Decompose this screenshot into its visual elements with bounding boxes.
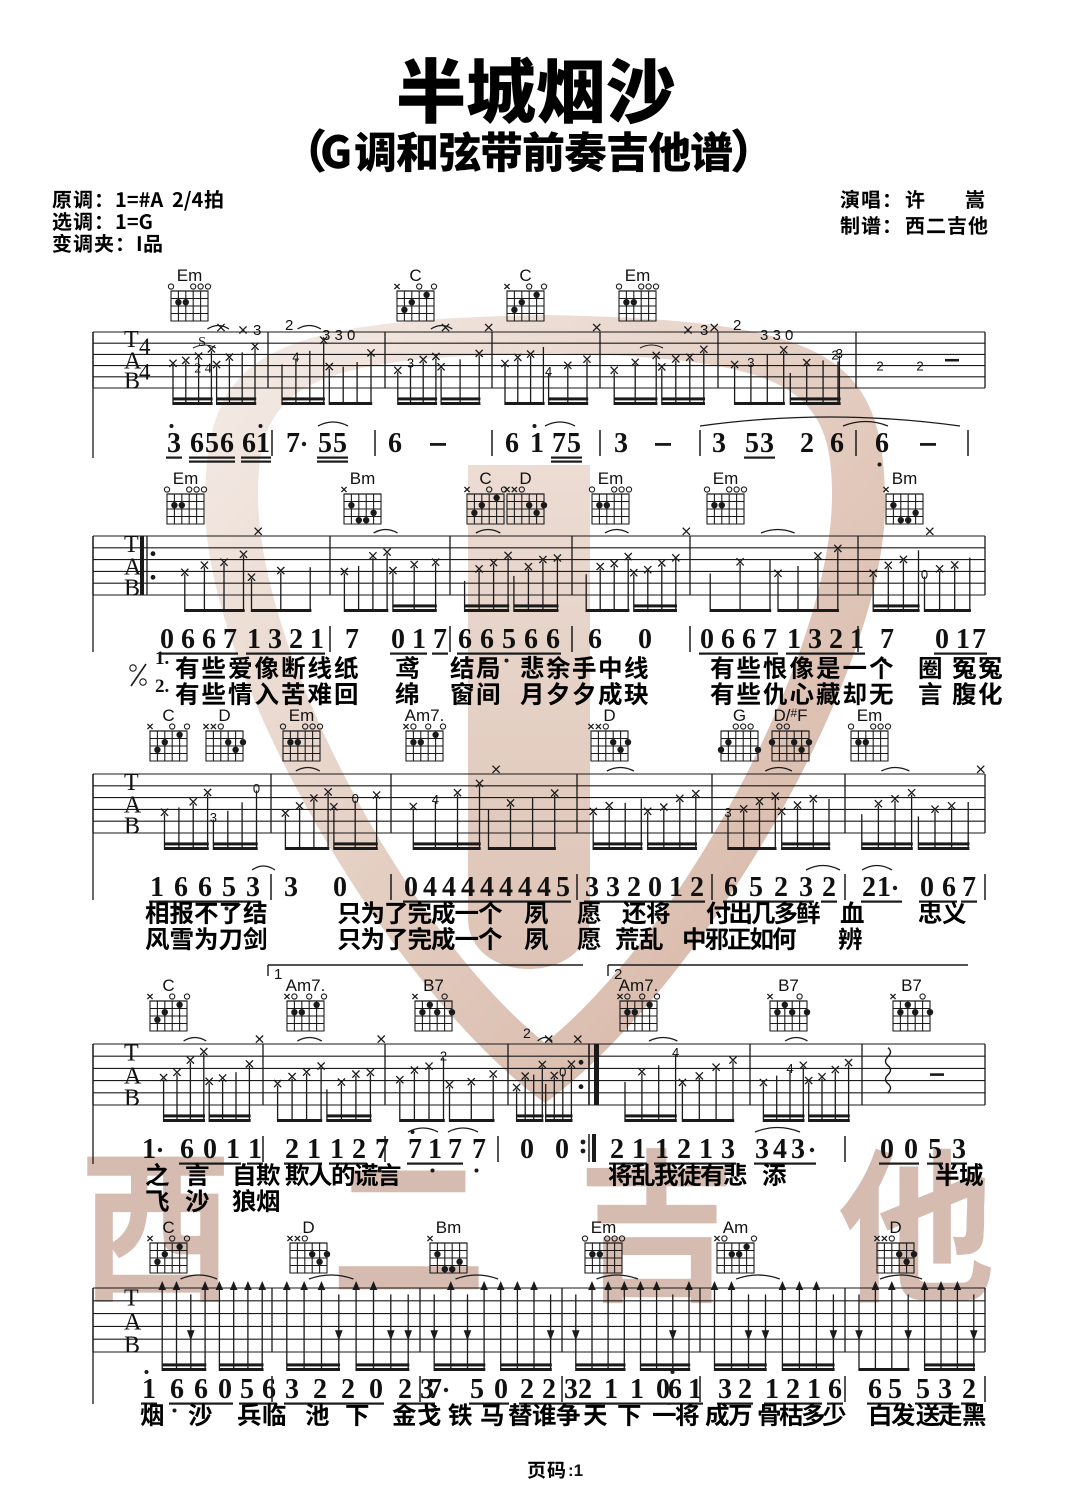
svg-text:2: 2 bbox=[610, 1134, 624, 1165]
svg-text:3: 3 bbox=[700, 322, 708, 339]
svg-text:2: 2 bbox=[831, 348, 838, 363]
svg-text:5: 5 bbox=[749, 872, 763, 903]
svg-text:Em: Em bbox=[173, 469, 199, 488]
svg-text:6: 6 bbox=[505, 428, 519, 459]
svg-text:1: 1 bbox=[632, 1134, 646, 1165]
svg-text:7: 7 bbox=[375, 1134, 389, 1165]
svg-text:3: 3 bbox=[760, 428, 774, 459]
svg-text:2: 2 bbox=[822, 872, 836, 903]
svg-text:3: 3 bbox=[791, 1134, 805, 1165]
svg-text:2: 2 bbox=[289, 624, 303, 655]
svg-text:6: 6 bbox=[868, 1374, 882, 1405]
svg-text:5: 5 bbox=[333, 428, 347, 459]
svg-text:3: 3 bbox=[808, 624, 822, 655]
svg-text:B7: B7 bbox=[901, 976, 922, 995]
svg-text:C: C bbox=[162, 706, 174, 725]
svg-text:3: 3 bbox=[721, 1134, 735, 1165]
svg-text:5: 5 bbox=[470, 1374, 484, 1405]
svg-text:1: 1 bbox=[787, 624, 801, 655]
svg-text:7: 7 bbox=[428, 1374, 442, 1405]
svg-text:6: 6 bbox=[202, 624, 216, 655]
svg-text:0: 0 bbox=[333, 872, 347, 903]
svg-text:6: 6 bbox=[198, 872, 212, 903]
svg-text:2: 2 bbox=[341, 1374, 355, 1405]
svg-text:5: 5 bbox=[745, 428, 759, 459]
svg-text:7: 7 bbox=[552, 428, 566, 459]
svg-text:0: 0 bbox=[218, 1374, 232, 1405]
svg-text:7: 7 bbox=[972, 624, 986, 655]
svg-text:6: 6 bbox=[170, 1374, 184, 1405]
svg-text:2: 2 bbox=[285, 317, 293, 334]
svg-text:3: 3 bbox=[938, 1374, 952, 1405]
svg-text:7: 7 bbox=[408, 1134, 422, 1165]
svg-text:2: 2 bbox=[542, 1374, 556, 1405]
svg-text:3 3 0: 3 3 0 bbox=[322, 327, 355, 344]
svg-text:6: 6 bbox=[388, 428, 402, 459]
svg-text:2.: 2. bbox=[155, 676, 169, 697]
svg-text:3: 3 bbox=[285, 1374, 299, 1405]
svg-text:6: 6 bbox=[588, 624, 602, 655]
svg-text:B: B bbox=[124, 576, 140, 602]
svg-text:3: 3 bbox=[268, 624, 282, 655]
svg-text:3 3 0: 3 3 0 bbox=[760, 327, 793, 344]
svg-text:3: 3 bbox=[284, 872, 298, 903]
svg-text:3: 3 bbox=[952, 1134, 966, 1165]
svg-text:1: 1 bbox=[307, 1134, 321, 1165]
svg-text:2: 2 bbox=[962, 1374, 976, 1405]
svg-text:0: 0 bbox=[700, 624, 714, 655]
svg-text:7: 7 bbox=[433, 624, 447, 655]
svg-text:5: 5 bbox=[916, 1374, 930, 1405]
svg-text:1: 1 bbox=[807, 1374, 821, 1405]
svg-text:5: 5 bbox=[240, 1374, 254, 1405]
svg-text:0: 0 bbox=[369, 1374, 383, 1405]
svg-text:6: 6 bbox=[524, 624, 538, 655]
svg-text:B: B bbox=[124, 1086, 140, 1112]
svg-text:6: 6 bbox=[220, 428, 234, 459]
svg-text:4: 4 bbox=[499, 872, 513, 903]
svg-text:2: 2 bbox=[738, 1374, 752, 1405]
svg-text:D: D bbox=[519, 469, 531, 488]
svg-text::1: :1 bbox=[568, 1461, 583, 1480]
svg-text:1: 1 bbox=[604, 1374, 618, 1405]
svg-text:7: 7 bbox=[962, 872, 976, 903]
svg-text:1: 1 bbox=[956, 624, 970, 655]
svg-text:1: 1 bbox=[655, 1134, 669, 1165]
svg-text:2 4: 2 4 bbox=[194, 361, 212, 376]
svg-text:7: 7 bbox=[286, 428, 300, 459]
svg-text:Am7.: Am7. bbox=[286, 976, 326, 995]
svg-text:0: 0 bbox=[648, 872, 662, 903]
svg-text:2: 2 bbox=[285, 1134, 299, 1165]
svg-text:6: 6 bbox=[242, 428, 256, 459]
svg-text:1: 1 bbox=[256, 428, 270, 459]
svg-text:7: 7 bbox=[880, 624, 894, 655]
svg-text:2: 2 bbox=[786, 1374, 800, 1405]
svg-text:6: 6 bbox=[180, 1134, 194, 1165]
svg-text:3: 3 bbox=[712, 428, 726, 459]
svg-text:6: 6 bbox=[546, 624, 560, 655]
svg-text:C: C bbox=[519, 266, 531, 285]
svg-text:B: B bbox=[124, 369, 140, 395]
svg-text:2: 2 bbox=[313, 1374, 327, 1405]
svg-text:3: 3 bbox=[799, 872, 813, 903]
svg-text:3: 3 bbox=[167, 428, 181, 459]
svg-text:1: 1 bbox=[428, 1134, 442, 1165]
svg-text:2: 2 bbox=[578, 1374, 592, 1405]
svg-text:2: 2 bbox=[520, 1374, 534, 1405]
svg-text:2: 2 bbox=[523, 1025, 531, 1041]
svg-text:6: 6 bbox=[724, 872, 738, 903]
svg-text:2: 2 bbox=[862, 872, 876, 903]
svg-text:Bm: Bm bbox=[350, 469, 376, 488]
svg-text:0: 0 bbox=[391, 624, 405, 655]
svg-text:7: 7 bbox=[763, 624, 777, 655]
svg-text:B: B bbox=[124, 1333, 140, 1359]
svg-text:0: 0 bbox=[520, 1134, 534, 1165]
svg-text:Em: Em bbox=[289, 706, 315, 725]
svg-text:4: 4 bbox=[773, 1134, 787, 1165]
svg-text:S: S bbox=[198, 335, 206, 350]
svg-text:1: 1 bbox=[274, 966, 282, 983]
svg-text:6: 6 bbox=[181, 624, 195, 655]
svg-text:2: 2 bbox=[774, 872, 788, 903]
svg-text:Am: Am bbox=[723, 1218, 749, 1237]
svg-text:Em: Em bbox=[591, 1218, 617, 1237]
svg-text:G: G bbox=[733, 706, 746, 725]
svg-text:1: 1 bbox=[669, 872, 683, 903]
svg-text:1: 1 bbox=[699, 1134, 713, 1165]
svg-text:6: 6 bbox=[875, 428, 889, 459]
svg-text:1: 1 bbox=[877, 872, 891, 903]
svg-text:1: 1 bbox=[247, 624, 261, 655]
svg-text:C: C bbox=[162, 1218, 174, 1237]
svg-text:Bm: Bm bbox=[436, 1218, 462, 1237]
svg-text:5: 5 bbox=[556, 872, 570, 903]
svg-text:0: 0 bbox=[203, 1134, 217, 1165]
svg-text:3: 3 bbox=[246, 872, 260, 903]
svg-text:Em: Em bbox=[625, 266, 651, 285]
svg-text:0: 0 bbox=[404, 872, 418, 903]
svg-text:0: 0 bbox=[904, 1134, 918, 1165]
svg-text:4: 4 bbox=[518, 872, 532, 903]
svg-text:6: 6 bbox=[828, 1374, 842, 1405]
svg-text:6: 6 bbox=[668, 1374, 682, 1405]
svg-text:1: 1 bbox=[150, 872, 164, 903]
svg-text:C: C bbox=[162, 976, 174, 995]
svg-text:5: 5 bbox=[502, 624, 516, 655]
svg-text:B: B bbox=[124, 814, 140, 840]
svg-text:1.: 1. bbox=[155, 648, 169, 669]
svg-text:2: 2 bbox=[627, 872, 641, 903]
svg-text:1: 1 bbox=[310, 624, 324, 655]
svg-text:Em: Em bbox=[598, 469, 624, 488]
svg-text:5: 5 bbox=[205, 428, 219, 459]
svg-text:2: 2 bbox=[352, 1134, 366, 1165]
svg-text:C: C bbox=[479, 469, 491, 488]
svg-text:3: 3 bbox=[253, 322, 261, 339]
svg-text:1: 1 bbox=[142, 1134, 156, 1165]
svg-text:6: 6 bbox=[190, 428, 204, 459]
svg-text:5: 5 bbox=[222, 872, 236, 903]
svg-text:2: 2 bbox=[916, 359, 923, 374]
svg-text:6: 6 bbox=[480, 624, 494, 655]
svg-text:6: 6 bbox=[262, 1374, 276, 1405]
svg-text:B7: B7 bbox=[778, 976, 799, 995]
svg-text:3: 3 bbox=[755, 1134, 769, 1165]
svg-text:1: 1 bbox=[850, 624, 864, 655]
svg-text:7: 7 bbox=[223, 624, 237, 655]
svg-text:4: 4 bbox=[423, 872, 437, 903]
svg-text:7: 7 bbox=[472, 1134, 486, 1165]
svg-text:Am7.: Am7. bbox=[619, 976, 659, 995]
svg-text:Am7.: Am7. bbox=[405, 706, 445, 725]
svg-text:D: D bbox=[603, 706, 615, 725]
svg-text:Em: Em bbox=[713, 469, 739, 488]
svg-text:6: 6 bbox=[194, 1374, 208, 1405]
svg-text:0: 0 bbox=[638, 624, 652, 655]
svg-text:T: T bbox=[124, 1041, 139, 1067]
svg-text:5: 5 bbox=[928, 1134, 942, 1165]
svg-text:1: 1 bbox=[530, 428, 544, 459]
svg-text:0: 0 bbox=[920, 872, 934, 903]
svg-text:4: 4 bbox=[480, 872, 494, 903]
svg-text:7: 7 bbox=[448, 1134, 462, 1165]
svg-text:0: 0 bbox=[935, 624, 949, 655]
svg-text:B7: B7 bbox=[423, 976, 444, 995]
svg-text:Em: Em bbox=[857, 706, 883, 725]
svg-text:4: 4 bbox=[537, 872, 551, 903]
svg-text:5: 5 bbox=[567, 428, 581, 459]
svg-text:3: 3 bbox=[585, 872, 599, 903]
svg-text:2: 2 bbox=[677, 1134, 691, 1165]
svg-text:6: 6 bbox=[942, 872, 956, 903]
svg-text:D: D bbox=[889, 1218, 901, 1237]
svg-text:2: 2 bbox=[829, 624, 843, 655]
svg-text:C: C bbox=[409, 266, 421, 285]
svg-text:4: 4 bbox=[461, 872, 475, 903]
svg-text:Bm: Bm bbox=[892, 469, 918, 488]
svg-text:3: 3 bbox=[606, 872, 620, 903]
svg-text:5: 5 bbox=[318, 428, 332, 459]
svg-text:2: 2 bbox=[876, 359, 883, 374]
svg-text:5: 5 bbox=[888, 1374, 902, 1405]
svg-text:2: 2 bbox=[398, 1374, 412, 1405]
svg-text:1: 1 bbox=[330, 1134, 344, 1165]
svg-text:6: 6 bbox=[458, 624, 472, 655]
svg-text:0: 0 bbox=[880, 1134, 894, 1165]
svg-text:Em: Em bbox=[177, 266, 203, 285]
svg-text:6: 6 bbox=[742, 624, 756, 655]
svg-text:1: 1 bbox=[226, 1134, 240, 1165]
svg-text:1: 1 bbox=[412, 624, 426, 655]
svg-text:1: 1 bbox=[248, 1134, 262, 1165]
svg-text:3: 3 bbox=[564, 1374, 578, 1405]
svg-text:3: 3 bbox=[718, 1374, 732, 1405]
svg-text:7: 7 bbox=[345, 624, 359, 655]
svg-text:1: 1 bbox=[630, 1374, 644, 1405]
svg-text:6: 6 bbox=[830, 428, 844, 459]
svg-text:2: 2 bbox=[733, 317, 741, 334]
svg-text:D: D bbox=[218, 706, 230, 725]
svg-text:1: 1 bbox=[765, 1374, 779, 1405]
svg-text:0: 0 bbox=[555, 1134, 569, 1165]
svg-text:D: D bbox=[302, 1218, 314, 1237]
svg-text:6: 6 bbox=[174, 872, 188, 903]
svg-text:3: 3 bbox=[614, 428, 628, 459]
svg-text:4: 4 bbox=[442, 872, 456, 903]
svg-text:1: 1 bbox=[142, 1374, 156, 1405]
svg-text:6: 6 bbox=[721, 624, 735, 655]
svg-text:0: 0 bbox=[494, 1374, 508, 1405]
svg-text:2: 2 bbox=[690, 872, 704, 903]
svg-text:2: 2 bbox=[800, 428, 814, 459]
svg-text:T: T bbox=[124, 1285, 139, 1311]
